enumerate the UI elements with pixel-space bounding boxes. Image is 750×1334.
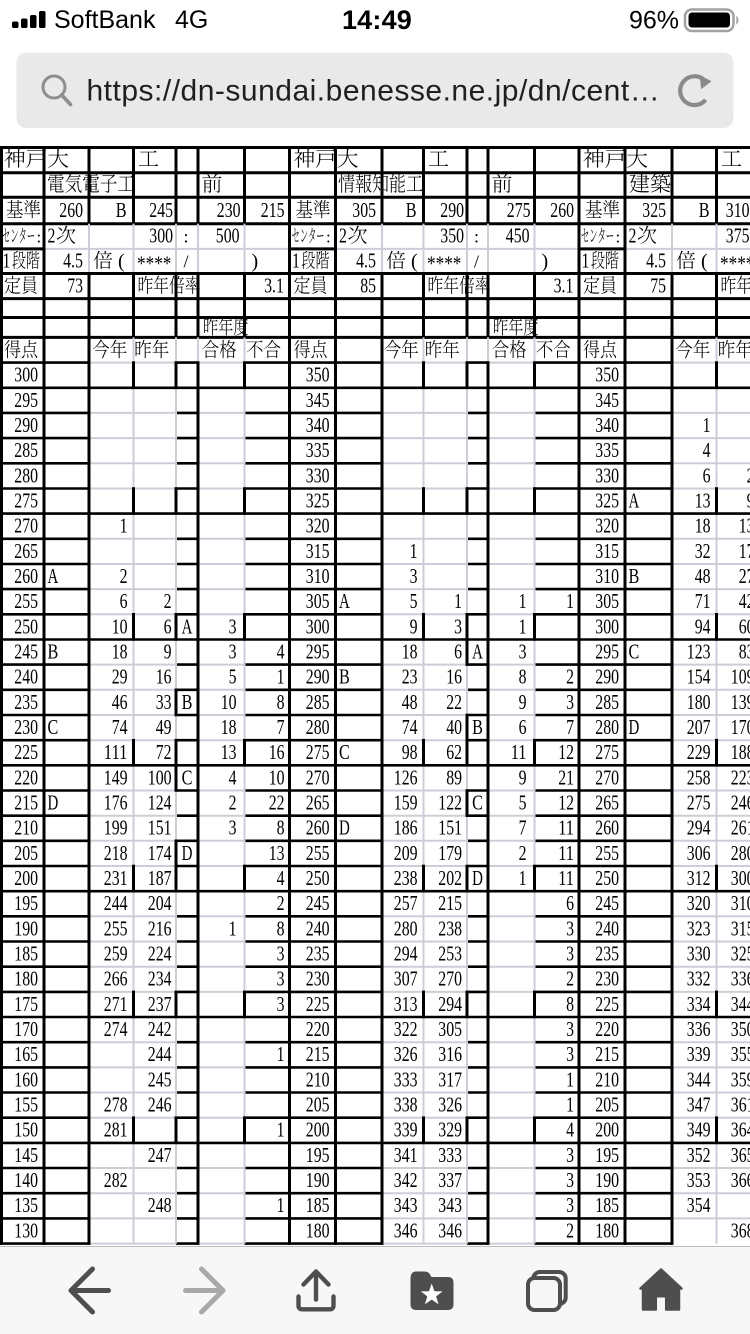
svg-text:355: 355	[731, 1042, 750, 1066]
svg-text:270: 270	[306, 765, 330, 789]
svg-text:89: 89	[446, 765, 462, 789]
svg-text:170: 170	[14, 1017, 38, 1041]
svg-text:8: 8	[277, 690, 285, 714]
svg-text:111: 111	[104, 740, 128, 764]
svg-text:343: 343	[438, 1193, 462, 1217]
svg-text:D: D	[48, 791, 59, 815]
svg-text:135: 135	[14, 1193, 38, 1217]
svg-text:280: 280	[595, 715, 619, 739]
svg-text:8: 8	[277, 916, 285, 940]
svg-text:225: 225	[306, 992, 330, 1016]
svg-text:10: 10	[221, 690, 237, 714]
svg-text:2: 2	[120, 564, 128, 588]
svg-text:242: 242	[148, 1017, 172, 1041]
svg-text::: :	[37, 227, 42, 246]
svg-text:3: 3	[277, 992, 285, 1016]
svg-text:B: B	[629, 564, 640, 588]
svg-text:11: 11	[558, 816, 574, 840]
svg-text:185: 185	[14, 942, 38, 966]
svg-text:210: 210	[595, 1067, 619, 1091]
svg-text:310: 310	[306, 564, 330, 588]
svg-text:336: 336	[687, 1017, 711, 1041]
svg-text:315: 315	[595, 539, 619, 563]
svg-text:7: 7	[277, 715, 285, 739]
svg-text:205: 205	[14, 841, 38, 865]
svg-text:316: 316	[438, 1042, 462, 1066]
svg-text:247: 247	[148, 1143, 172, 1167]
svg-text:11: 11	[511, 740, 527, 764]
svg-text:122: 122	[438, 791, 462, 815]
svg-text:306: 306	[687, 841, 711, 865]
svg-text:329: 329	[438, 1118, 462, 1142]
svg-text:190: 190	[306, 1168, 330, 1192]
svg-text:C: C	[48, 715, 59, 739]
svg-text:353: 353	[687, 1168, 711, 1192]
svg-text:3: 3	[277, 967, 285, 991]
svg-text:4.5: 4.5	[356, 249, 376, 273]
svg-text:350: 350	[440, 223, 464, 247]
svg-text:305: 305	[595, 589, 619, 613]
svg-text:325: 325	[595, 489, 619, 513]
svg-text:281: 281	[104, 1118, 128, 1142]
svg-text:340: 340	[595, 413, 619, 437]
svg-text:333: 333	[394, 1067, 418, 1091]
svg-text:300: 300	[731, 866, 750, 890]
svg-text:310: 310	[726, 198, 750, 222]
svg-text:3: 3	[566, 1193, 574, 1217]
svg-text:9: 9	[410, 614, 418, 638]
svg-text:16: 16	[269, 740, 285, 764]
svg-text:1: 1	[277, 665, 285, 689]
svg-text:B: B	[339, 665, 350, 689]
svg-text:352: 352	[687, 1143, 711, 1167]
svg-text:5: 5	[410, 589, 418, 613]
svg-text:185: 185	[306, 1193, 330, 1217]
svg-text:C: C	[629, 640, 640, 664]
svg-text:33: 33	[156, 690, 172, 714]
svg-text:6: 6	[454, 640, 462, 664]
svg-text:260: 260	[59, 198, 83, 222]
svg-text:305: 305	[438, 1017, 462, 1041]
svg-text:332: 332	[687, 967, 711, 991]
svg-text:270: 270	[438, 967, 462, 991]
svg-text:139: 139	[731, 690, 750, 714]
svg-text:185: 185	[595, 1193, 619, 1217]
svg-text:246: 246	[731, 791, 750, 815]
svg-text:18: 18	[221, 715, 237, 739]
svg-text:123: 123	[687, 640, 711, 664]
svg-text:D: D	[182, 841, 193, 865]
svg-text:B: B	[699, 198, 710, 222]
svg-text:248: 248	[148, 1193, 172, 1217]
svg-text:A: A	[629, 489, 640, 513]
svg-text:343: 343	[394, 1193, 418, 1217]
svg-text:195: 195	[595, 1143, 619, 1167]
svg-text:****: ****	[427, 252, 461, 276]
svg-text:6: 6	[120, 589, 128, 613]
svg-text:165: 165	[14, 1042, 38, 1066]
svg-text:22: 22	[446, 690, 462, 714]
svg-text:9: 9	[519, 765, 527, 789]
svg-text:https://dn-sundai.benesse.ne.j: https://dn-sundai.benesse.ne.jp/dn/cent…	[87, 75, 661, 108]
svg-text:290: 290	[440, 198, 464, 222]
svg-text:275: 275	[595, 740, 619, 764]
svg-text:151: 151	[148, 816, 172, 840]
svg-text:231: 231	[104, 866, 128, 890]
svg-text:3: 3	[566, 1168, 574, 1192]
svg-text:1: 1	[566, 1067, 574, 1091]
svg-text:349: 349	[687, 1118, 711, 1142]
svg-text:72: 72	[156, 740, 172, 764]
svg-text:C: C	[472, 791, 483, 815]
svg-text:3.1: 3.1	[264, 274, 284, 298]
svg-text:21: 21	[558, 765, 574, 789]
svg-text:326: 326	[394, 1042, 418, 1066]
svg-text:317: 317	[438, 1067, 462, 1091]
svg-text:1: 1	[454, 589, 462, 613]
svg-text:240: 240	[14, 665, 38, 689]
svg-text:210: 210	[14, 816, 38, 840]
svg-text:2: 2	[566, 1218, 574, 1242]
svg-text:220: 220	[595, 1017, 619, 1041]
svg-text:274: 274	[104, 1017, 128, 1041]
svg-text:350: 350	[731, 1017, 750, 1041]
svg-text:3: 3	[566, 1143, 574, 1167]
svg-text:17: 17	[739, 539, 750, 563]
svg-text:450: 450	[506, 223, 530, 247]
svg-text:7: 7	[566, 715, 574, 739]
svg-text:238: 238	[438, 916, 462, 940]
svg-text:330: 330	[687, 942, 711, 966]
svg-text:342: 342	[394, 1168, 418, 1192]
svg-text:280: 280	[731, 841, 750, 865]
svg-text::: :	[474, 226, 479, 246]
svg-text:C: C	[339, 740, 350, 764]
svg-text:275: 275	[507, 198, 531, 222]
svg-text:B: B	[116, 198, 127, 222]
svg-text:245: 245	[148, 1067, 172, 1091]
svg-text:250: 250	[306, 866, 330, 890]
svg-text:229: 229	[687, 740, 711, 764]
svg-text:282: 282	[104, 1168, 128, 1192]
svg-text:16: 16	[446, 665, 462, 689]
svg-text:260: 260	[595, 816, 619, 840]
svg-text:294: 294	[438, 992, 462, 1016]
svg-text:200: 200	[14, 866, 38, 890]
svg-text:220: 220	[306, 1017, 330, 1041]
svg-text:245: 245	[306, 891, 330, 915]
svg-text:3: 3	[566, 1017, 574, 1041]
svg-text:160: 160	[14, 1067, 38, 1091]
svg-text:338: 338	[394, 1093, 418, 1117]
svg-text:186: 186	[394, 816, 418, 840]
svg-text:215: 215	[14, 791, 38, 815]
svg-text:13: 13	[269, 841, 285, 865]
svg-text:13: 13	[695, 489, 711, 513]
svg-text:330: 330	[306, 463, 330, 487]
svg-text:285: 285	[595, 690, 619, 714]
svg-text:255: 255	[104, 916, 128, 940]
svg-text:1: 1	[519, 589, 527, 613]
svg-text:100: 100	[148, 765, 172, 789]
svg-text:3: 3	[566, 1042, 574, 1066]
svg-text:48: 48	[695, 564, 711, 588]
svg-text:1: 1	[519, 614, 527, 638]
svg-text:336: 336	[731, 967, 750, 991]
svg-text:280: 280	[394, 916, 418, 940]
svg-text:265: 265	[14, 539, 38, 563]
svg-text:320: 320	[595, 514, 619, 538]
svg-text:238: 238	[394, 866, 418, 890]
svg-text:1: 1	[566, 1093, 574, 1117]
svg-text:266: 266	[104, 967, 128, 991]
svg-text:29: 29	[112, 665, 128, 689]
svg-text:): )	[252, 251, 259, 273]
svg-text:330: 330	[595, 463, 619, 487]
svg-text:3: 3	[454, 614, 462, 638]
svg-text:170: 170	[731, 715, 750, 739]
svg-text:218: 218	[104, 841, 128, 865]
svg-text:225: 225	[595, 992, 619, 1016]
svg-text:278: 278	[104, 1093, 128, 1117]
svg-text:250: 250	[14, 614, 38, 638]
svg-text:500: 500	[216, 223, 240, 247]
svg-text:275: 275	[14, 489, 38, 513]
svg-text:3: 3	[229, 816, 237, 840]
svg-text:2: 2	[164, 589, 172, 613]
svg-text:****: ****	[137, 252, 171, 276]
svg-text:335: 335	[595, 438, 619, 462]
svg-text:300: 300	[149, 223, 173, 247]
svg-text:B: B	[48, 640, 59, 664]
svg-text:11: 11	[558, 866, 574, 890]
svg-text:9: 9	[164, 640, 172, 664]
svg-text:347: 347	[687, 1093, 711, 1117]
svg-text:275: 275	[306, 740, 330, 764]
svg-text:1: 1	[582, 249, 590, 273]
svg-text:/: /	[474, 252, 479, 272]
svg-text:4.5: 4.5	[646, 249, 666, 273]
svg-text:175: 175	[14, 992, 38, 1016]
svg-text:151: 151	[438, 816, 462, 840]
svg-text:230: 230	[306, 967, 330, 991]
svg-text:253: 253	[438, 942, 462, 966]
svg-text:6: 6	[164, 614, 172, 638]
svg-text:2: 2	[566, 665, 574, 689]
svg-text:280: 280	[306, 715, 330, 739]
svg-text:4: 4	[703, 438, 711, 462]
svg-text:187: 187	[148, 866, 172, 890]
svg-text:D: D	[472, 866, 483, 890]
svg-text:207: 207	[687, 715, 711, 739]
svg-text:3.1: 3.1	[554, 274, 574, 298]
svg-text:250: 250	[595, 866, 619, 890]
svg-text:295: 295	[595, 640, 619, 664]
svg-text:2: 2	[566, 967, 574, 991]
svg-text:180: 180	[595, 1218, 619, 1242]
svg-text:9: 9	[519, 690, 527, 714]
svg-text:180: 180	[14, 967, 38, 991]
svg-text:130: 130	[14, 1218, 38, 1242]
svg-text:230: 230	[14, 715, 38, 739]
svg-text:190: 190	[14, 916, 38, 940]
svg-text:2: 2	[277, 891, 285, 915]
svg-text:14:49: 14:49	[342, 5, 412, 35]
svg-text:354: 354	[687, 1193, 711, 1217]
svg-text:290: 290	[306, 665, 330, 689]
svg-text:366: 366	[731, 1168, 750, 1192]
svg-text:300: 300	[595, 614, 619, 638]
svg-text:2: 2	[48, 223, 56, 247]
svg-text:4G: 4G	[175, 6, 208, 34]
svg-text:216: 216	[148, 916, 172, 940]
svg-text:337: 337	[438, 1168, 462, 1192]
svg-text:325: 325	[642, 198, 666, 222]
svg-text:46: 46	[112, 690, 128, 714]
svg-text:D: D	[339, 816, 350, 840]
svg-text:305: 305	[352, 198, 376, 222]
svg-text:3: 3	[566, 942, 574, 966]
svg-text:49: 49	[156, 715, 172, 739]
svg-text:244: 244	[148, 1042, 172, 1066]
svg-text:3: 3	[410, 564, 418, 588]
svg-text:13: 13	[221, 740, 237, 764]
svg-text:8: 8	[277, 816, 285, 840]
svg-text:62: 62	[446, 740, 462, 764]
svg-text:18: 18	[695, 514, 711, 538]
svg-text:223: 223	[731, 765, 750, 789]
svg-text:245: 245	[595, 891, 619, 915]
svg-text:300: 300	[14, 363, 38, 387]
svg-text:149: 149	[104, 765, 128, 789]
svg-text:98: 98	[402, 740, 418, 764]
svg-text:3: 3	[566, 690, 574, 714]
svg-text:124: 124	[148, 791, 172, 815]
svg-text:12: 12	[558, 791, 574, 815]
svg-text:215: 215	[306, 1042, 330, 1066]
svg-text:315: 315	[731, 916, 750, 940]
svg-text:174: 174	[148, 841, 172, 865]
svg-text:74: 74	[112, 715, 128, 739]
svg-text:225: 225	[14, 740, 38, 764]
svg-text:210: 210	[306, 1067, 330, 1091]
svg-text:3: 3	[519, 640, 527, 664]
svg-text:B: B	[472, 715, 483, 739]
svg-text:18: 18	[112, 640, 128, 664]
svg-text:2: 2	[229, 791, 237, 815]
svg-text:265: 265	[306, 791, 330, 815]
svg-text:190: 190	[595, 1168, 619, 1192]
svg-text:4: 4	[277, 866, 285, 890]
svg-text:A: A	[48, 564, 59, 588]
svg-text:265: 265	[595, 791, 619, 815]
svg-text:205: 205	[595, 1093, 619, 1117]
svg-text:285: 285	[14, 438, 38, 462]
svg-text:260: 260	[14, 564, 38, 588]
svg-text:A: A	[472, 640, 483, 664]
svg-text:42: 42	[739, 589, 750, 613]
svg-text:13: 13	[739, 514, 750, 538]
svg-text:205: 205	[306, 1093, 330, 1117]
svg-text:202: 202	[438, 866, 462, 890]
svg-text:94: 94	[695, 614, 711, 638]
svg-text:(: (	[118, 251, 125, 273]
svg-text:260: 260	[550, 198, 574, 222]
svg-text:230: 230	[595, 967, 619, 991]
svg-text:154: 154	[687, 665, 711, 689]
svg-text:1: 1	[703, 413, 711, 437]
svg-text:1: 1	[519, 866, 527, 890]
svg-text:234: 234	[148, 967, 172, 991]
svg-text:71: 71	[695, 589, 711, 613]
svg-text:280: 280	[14, 463, 38, 487]
svg-text:B: B	[182, 690, 193, 714]
svg-text:255: 255	[14, 589, 38, 613]
svg-text:368: 368	[731, 1218, 750, 1242]
svg-text:1: 1	[277, 1042, 285, 1066]
svg-text:271: 271	[104, 992, 128, 1016]
svg-text:1: 1	[229, 916, 237, 940]
svg-text:255: 255	[595, 841, 619, 865]
svg-text:****: ****	[720, 252, 750, 276]
svg-text:313: 313	[394, 992, 418, 1016]
svg-text:): )	[542, 251, 549, 273]
svg-text:1: 1	[277, 1193, 285, 1217]
svg-text:344: 344	[687, 1067, 711, 1091]
svg-text:224: 224	[148, 942, 172, 966]
svg-text::: :	[326, 227, 331, 246]
svg-text:155: 155	[14, 1093, 38, 1117]
svg-text:345: 345	[306, 388, 330, 412]
svg-text:1: 1	[3, 249, 11, 273]
svg-text:240: 240	[306, 916, 330, 940]
svg-text:333: 333	[438, 1143, 462, 1167]
svg-text:195: 195	[14, 891, 38, 915]
svg-text:4.5: 4.5	[63, 249, 83, 273]
svg-text:2: 2	[747, 463, 750, 487]
svg-text:6: 6	[519, 715, 527, 739]
svg-text:1: 1	[566, 589, 574, 613]
svg-text:339: 339	[394, 1118, 418, 1142]
svg-text:364: 364	[731, 1118, 750, 1142]
svg-text:344: 344	[731, 992, 750, 1016]
svg-text:1: 1	[292, 249, 300, 273]
svg-text::: :	[183, 226, 188, 246]
svg-text:350: 350	[595, 363, 619, 387]
svg-text:325: 325	[306, 489, 330, 513]
svg-text:145: 145	[14, 1143, 38, 1167]
svg-text:305: 305	[306, 589, 330, 613]
svg-text:2: 2	[339, 223, 347, 247]
svg-text:215: 215	[595, 1042, 619, 1066]
svg-text:140: 140	[14, 1168, 38, 1192]
svg-text:6: 6	[703, 463, 711, 487]
svg-text:179: 179	[438, 841, 462, 865]
svg-text:339: 339	[687, 1042, 711, 1066]
svg-text:359: 359	[731, 1067, 750, 1091]
svg-text:270: 270	[595, 765, 619, 789]
svg-text:290: 290	[14, 413, 38, 437]
svg-text:10: 10	[112, 614, 128, 638]
svg-text:237: 237	[148, 992, 172, 1016]
svg-text:257: 257	[394, 891, 418, 915]
svg-text:16: 16	[156, 665, 172, 689]
svg-text:340: 340	[306, 413, 330, 437]
svg-text:346: 346	[438, 1218, 462, 1242]
svg-text:3: 3	[566, 916, 574, 940]
svg-text:B: B	[406, 198, 417, 222]
svg-text:215: 215	[261, 198, 285, 222]
